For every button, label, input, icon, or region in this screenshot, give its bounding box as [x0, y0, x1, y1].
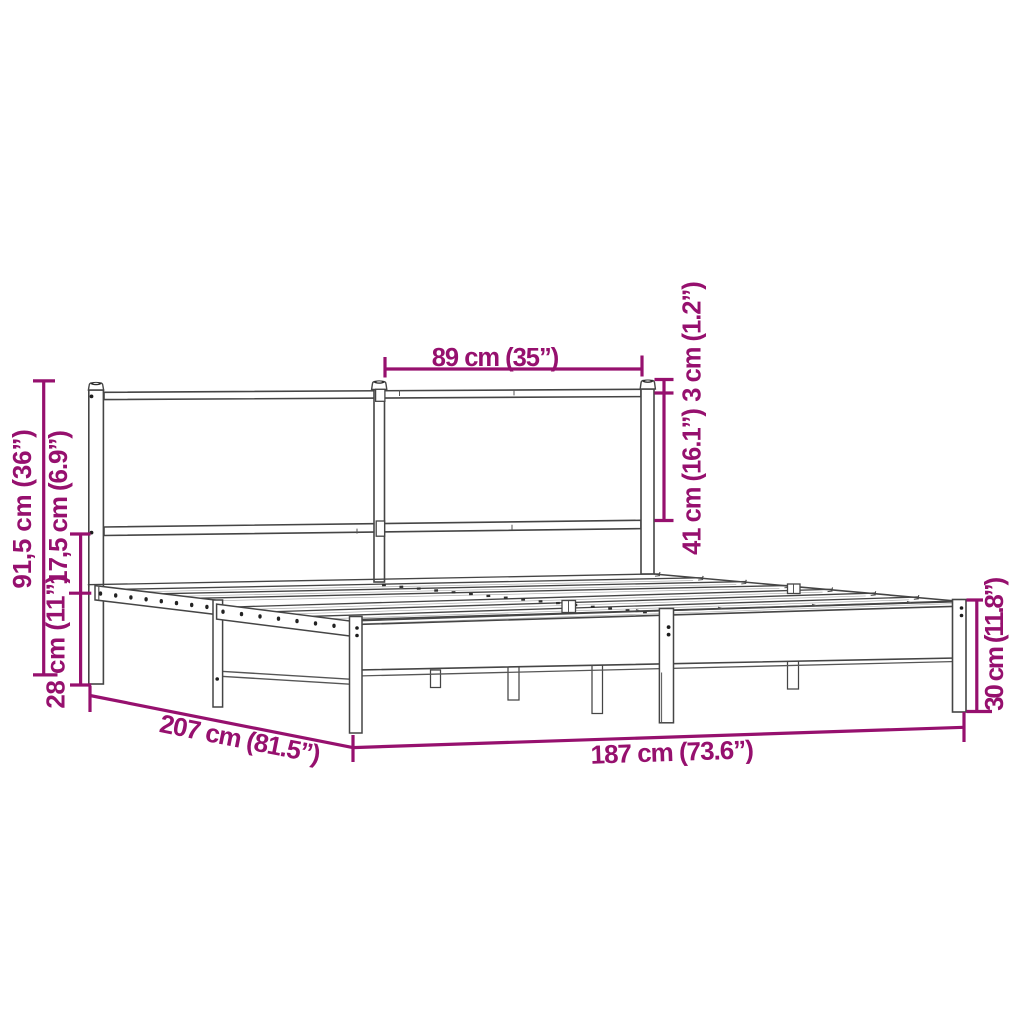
svg-text:3 cm (1.2”): 3 cm (1.2”)	[679, 282, 707, 402]
svg-text:30 cm (11.8”): 30 cm (11.8”)	[979, 578, 1009, 711]
svg-text:187 cm (73.6”): 187 cm (73.6”)	[590, 734, 754, 769]
svg-text:41 cm (16.1”): 41 cm (16.1”)	[679, 409, 707, 555]
svg-text:91,5 cm (36”): 91,5 cm (36”)	[7, 429, 37, 588]
svg-text:28 cm (11”): 28 cm (11”)	[41, 575, 71, 708]
svg-text:17,5 cm (6.9”): 17,5 cm (6.9”)	[43, 431, 73, 585]
svg-text:89 cm (35”): 89 cm (35”)	[432, 344, 559, 372]
